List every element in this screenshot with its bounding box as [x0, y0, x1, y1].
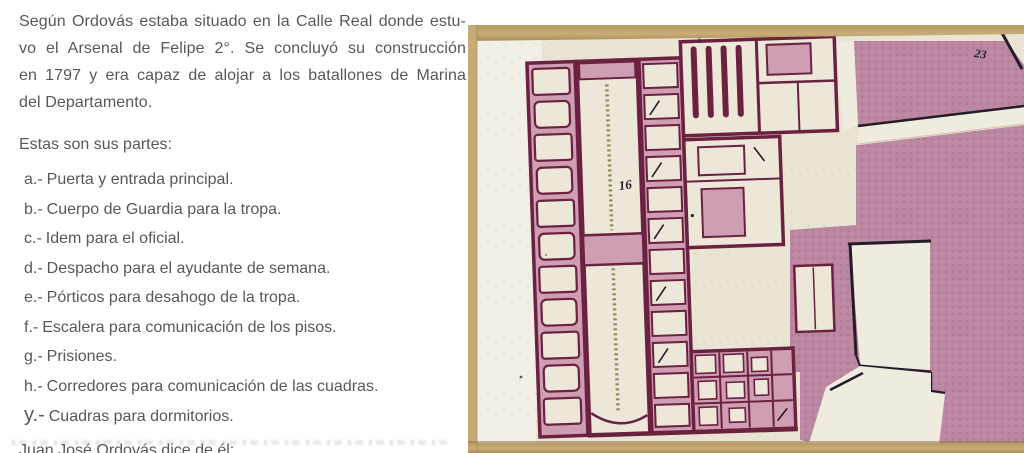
list-item: e.-Pórticos para desahogo de la tropa. — [24, 289, 466, 306]
bottom-cells-cluster — [691, 348, 796, 432]
item-text: Puerta y entrada principal. — [47, 171, 234, 188]
historical-plan-map: 16 — [468, 25, 1024, 453]
list-item: f.-Escalera para comunicación de los pis… — [24, 319, 466, 336]
item-text: Prisiones. — [47, 348, 117, 365]
item-prefix: y.- — [24, 407, 45, 424]
portico-rooms — [680, 36, 837, 135]
portico-column — [724, 48, 726, 114]
list-item: d.-Despacho para el ayudante de semana. — [24, 260, 466, 277]
list-item: g.-Prisiones. — [24, 348, 466, 365]
item-prefix: d.- — [24, 260, 43, 277]
item-text: Despacho para el ayudante de semana. — [47, 260, 331, 277]
text-column: Según Ordovás estaba situado en la Calle… — [19, 8, 466, 453]
portico-column — [709, 49, 711, 115]
item-prefix: c.- — [24, 230, 42, 247]
item-prefix: h.- — [24, 378, 43, 395]
paragraph-line: vo el Arsenal de Felipe 2°. Se concluyó … — [19, 35, 466, 62]
partes-heading: Estas son sus partes: — [19, 136, 466, 154]
list-item: y.-Cuadras para dormitorios. — [24, 407, 466, 425]
paragraph-line: Según Ordovás estaba situado en la Calle… — [19, 8, 466, 35]
hall-top-rooms — [579, 61, 636, 79]
plan-svg: 16 — [468, 25, 1024, 453]
document-page: Según Ordovás estaba situado en la Calle… — [0, 0, 1024, 453]
item-text: Corredores para comunicación de las cuad… — [47, 378, 379, 395]
item-text: Pórticos para desahogo de la tropa. — [47, 289, 301, 306]
parts-list: a.-Puerta y entrada principal. b.-Cuerpo… — [19, 171, 466, 425]
list-item: c.-Idem para el oficial. — [24, 230, 466, 247]
portico-column — [739, 48, 741, 114]
item-text: Cuadras para dormitorios. — [49, 408, 234, 425]
paper-border-bottom — [468, 443, 1024, 453]
list-item: a.-Puerta y entrada principal. — [24, 171, 466, 188]
paper-border-left — [468, 25, 477, 453]
item-prefix: b.- — [24, 201, 43, 218]
central-hall: 16 — [577, 59, 650, 435]
list-item: b.-Cuerpo de Guardia para la tropa. — [24, 201, 466, 218]
item-prefix: f.- — [24, 319, 38, 336]
item-prefix: a.- — [24, 171, 43, 188]
inner-courtyard-building — [794, 265, 834, 332]
cut-off-text-line — [12, 440, 448, 445]
paragraph-line: del Departamento. — [19, 89, 466, 116]
item-prefix: g.- — [24, 348, 43, 365]
item-text: Idem para el oficial. — [46, 230, 185, 247]
hall-cross-band — [583, 233, 644, 265]
list-item: h.-Corredores para comunicación de las c… — [24, 378, 466, 395]
portico-column — [694, 49, 696, 115]
item-text: Escalera para comunicación de los pisos. — [42, 319, 336, 336]
item-prefix: e.- — [24, 289, 43, 306]
mid-rooms — [684, 136, 784, 247]
item-text: Cuerpo de Guardia para la tropa. — [47, 201, 282, 218]
intro-paragraph: Según Ordovás estaba situado en la Calle… — [19, 8, 466, 116]
paragraph-line: en 1797 y era capaz de alojar a los bata… — [19, 62, 466, 89]
label-16: 16 — [618, 176, 633, 193]
label-23: 23 — [973, 46, 988, 62]
